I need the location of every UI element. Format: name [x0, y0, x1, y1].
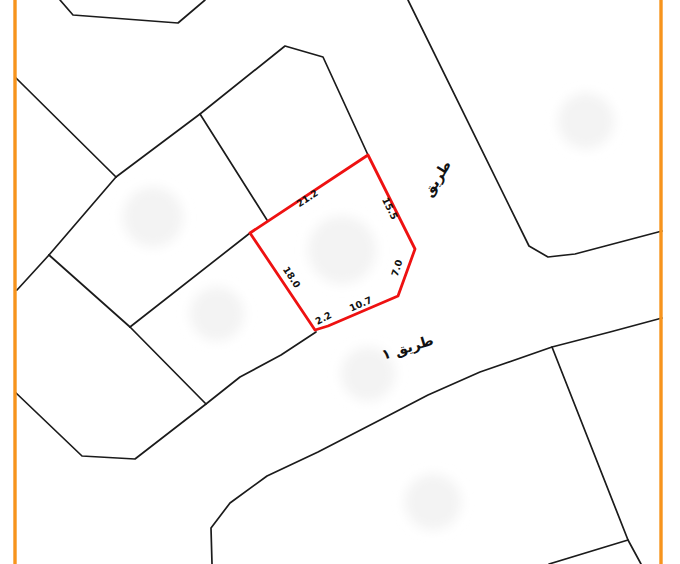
dimension-label-east: 7.0 — [389, 258, 405, 278]
cadastral-map-viewport[interactable]: 21.2 15.5 7.0 10.7 2.2 18.0 طريق طريق ١ — [0, 0, 680, 564]
footprint-blob — [558, 93, 614, 149]
parcel-boundary — [60, 0, 205, 23]
footprint-blob — [123, 187, 183, 247]
road-edge — [15, 332, 316, 459]
parcel-boundary — [200, 114, 267, 220]
road-labels: طريق طريق ١ — [380, 157, 455, 363]
parcel-boundary — [549, 540, 628, 564]
parcel-boundary — [552, 347, 641, 564]
dimension-label-northeast: 15.5 — [380, 196, 400, 222]
road-label-upper: طريق — [419, 157, 454, 200]
road-edge — [408, 0, 662, 257]
cadastral-map-canvas: 21.2 15.5 7.0 10.7 2.2 18.0 طريق طريق ١ — [0, 0, 680, 564]
footprint-blob — [405, 474, 461, 530]
parcel-boundary — [49, 177, 116, 255]
footprint-blob — [308, 216, 376, 284]
parcel-boundary — [17, 255, 49, 290]
parcel-boundary — [16, 78, 116, 177]
footprint-blob — [190, 287, 244, 341]
parcel-boundary — [49, 255, 130, 327]
road-label-lower: طريق ١ — [380, 332, 436, 364]
parcel-boundary — [116, 46, 368, 177]
dimension-label-northwest: 21.2 — [294, 187, 320, 209]
parcel-boundary — [130, 327, 206, 404]
